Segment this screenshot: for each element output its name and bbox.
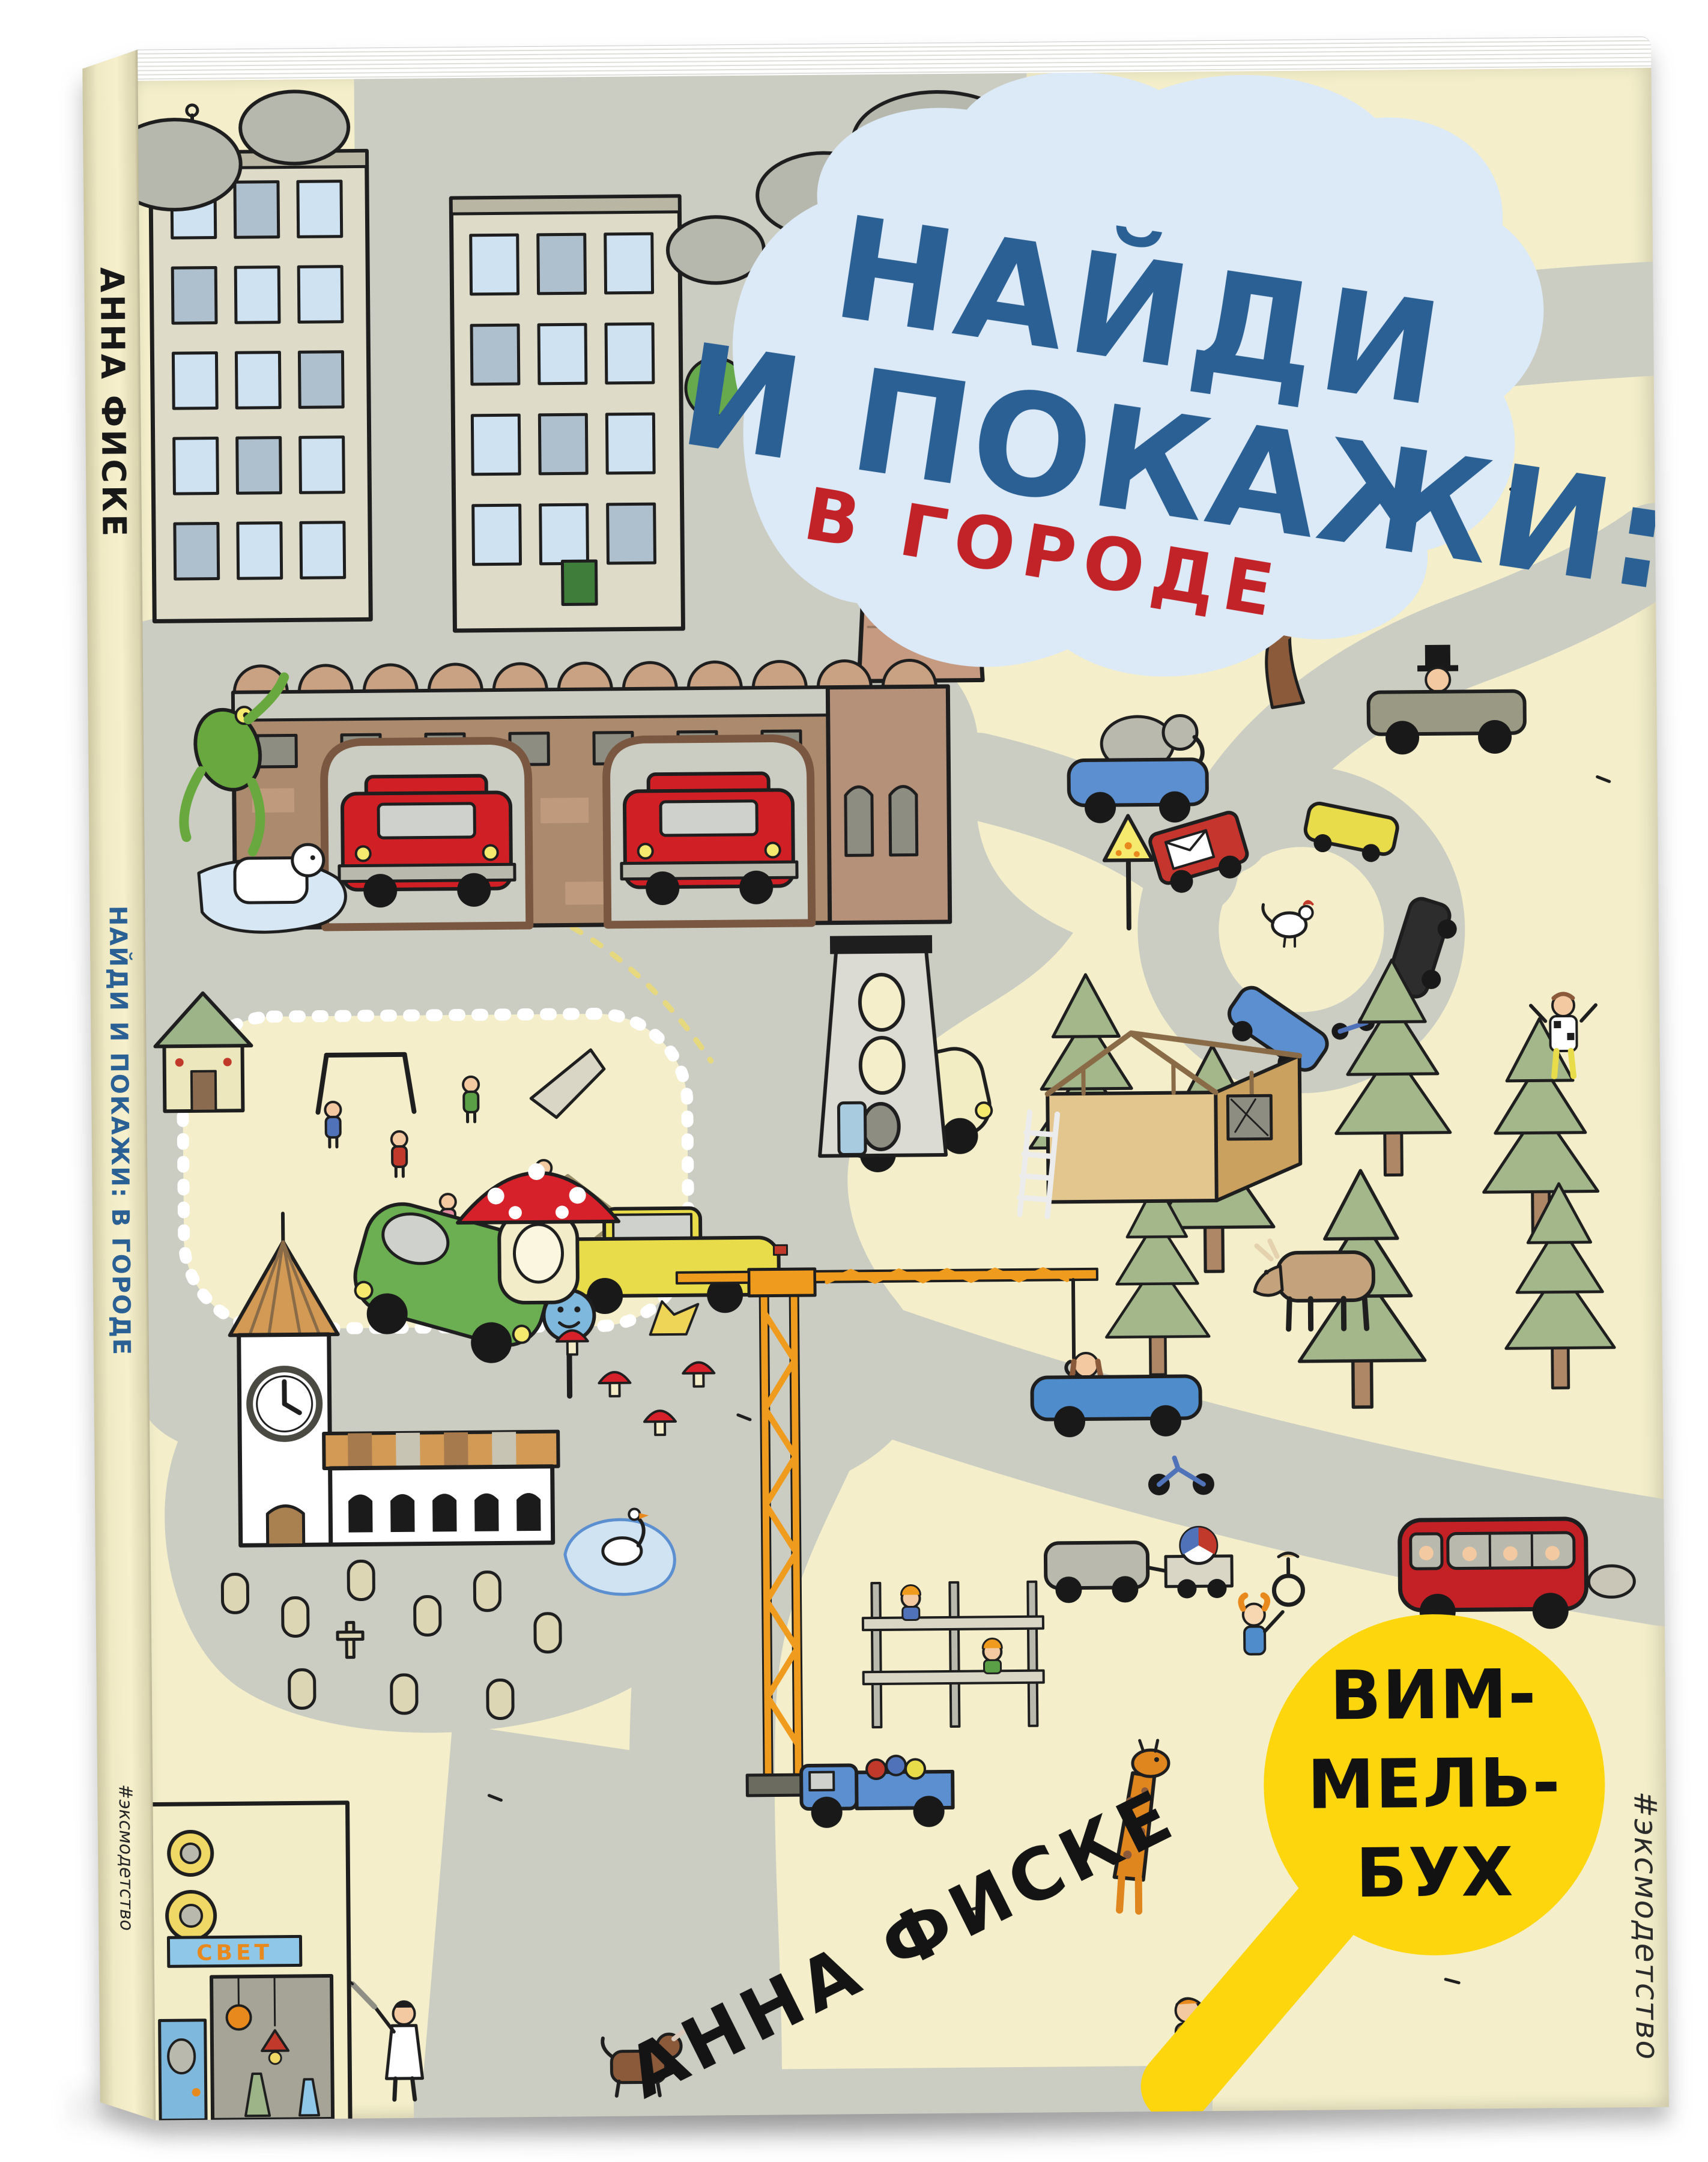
scaffolding-workers	[862, 1582, 1044, 1728]
worker	[983, 1638, 1002, 1673]
lamp-shop: СВЕТ	[150, 1803, 351, 2121]
product-photo: АННА ФИСКЕ НАЙДИ И ПОКАЖИ: В ГОРОДЕ #экс…	[0, 0, 1708, 2162]
spine-title: НАЙДИ И ПОКАЖИ: В ГОРОДЕ	[103, 906, 135, 1356]
badge-line2: МЕЛЬ-	[1307, 1739, 1561, 1830]
car-with-trailer	[1046, 1527, 1232, 1603]
climbing-tower	[818, 935, 946, 1156]
blue-truck	[801, 1755, 953, 1828]
rooster	[1263, 901, 1313, 947]
worker	[901, 1585, 921, 1620]
publisher-hashtag: #эксмодетство	[1626, 1791, 1665, 2061]
spine-publisher-hashtag: #эксмодетство	[115, 1784, 137, 1931]
doctor	[345, 1976, 423, 2100]
spine-author: АННА ФИСКЕ	[93, 267, 133, 539]
trash-bin	[562, 561, 596, 604]
shop-sign-text: СВЕТ	[196, 1940, 273, 1966]
badge-line1: ВИМ-	[1330, 1651, 1537, 1742]
book-cover-mockup: АННА ФИСКЕ НАЙДИ И ПОКАЖИ: В ГОРОДЕ #экс…	[82, 37, 1669, 2121]
series-badge-magnifier: ВИМ- МЕЛЬ- БУХ	[1262, 1612, 1607, 1957]
front-cover: СВЕТ	[138, 68, 1669, 2121]
clown-with-unicycle	[1241, 1553, 1304, 1655]
badge-line3: БУХ	[1355, 1829, 1515, 1919]
